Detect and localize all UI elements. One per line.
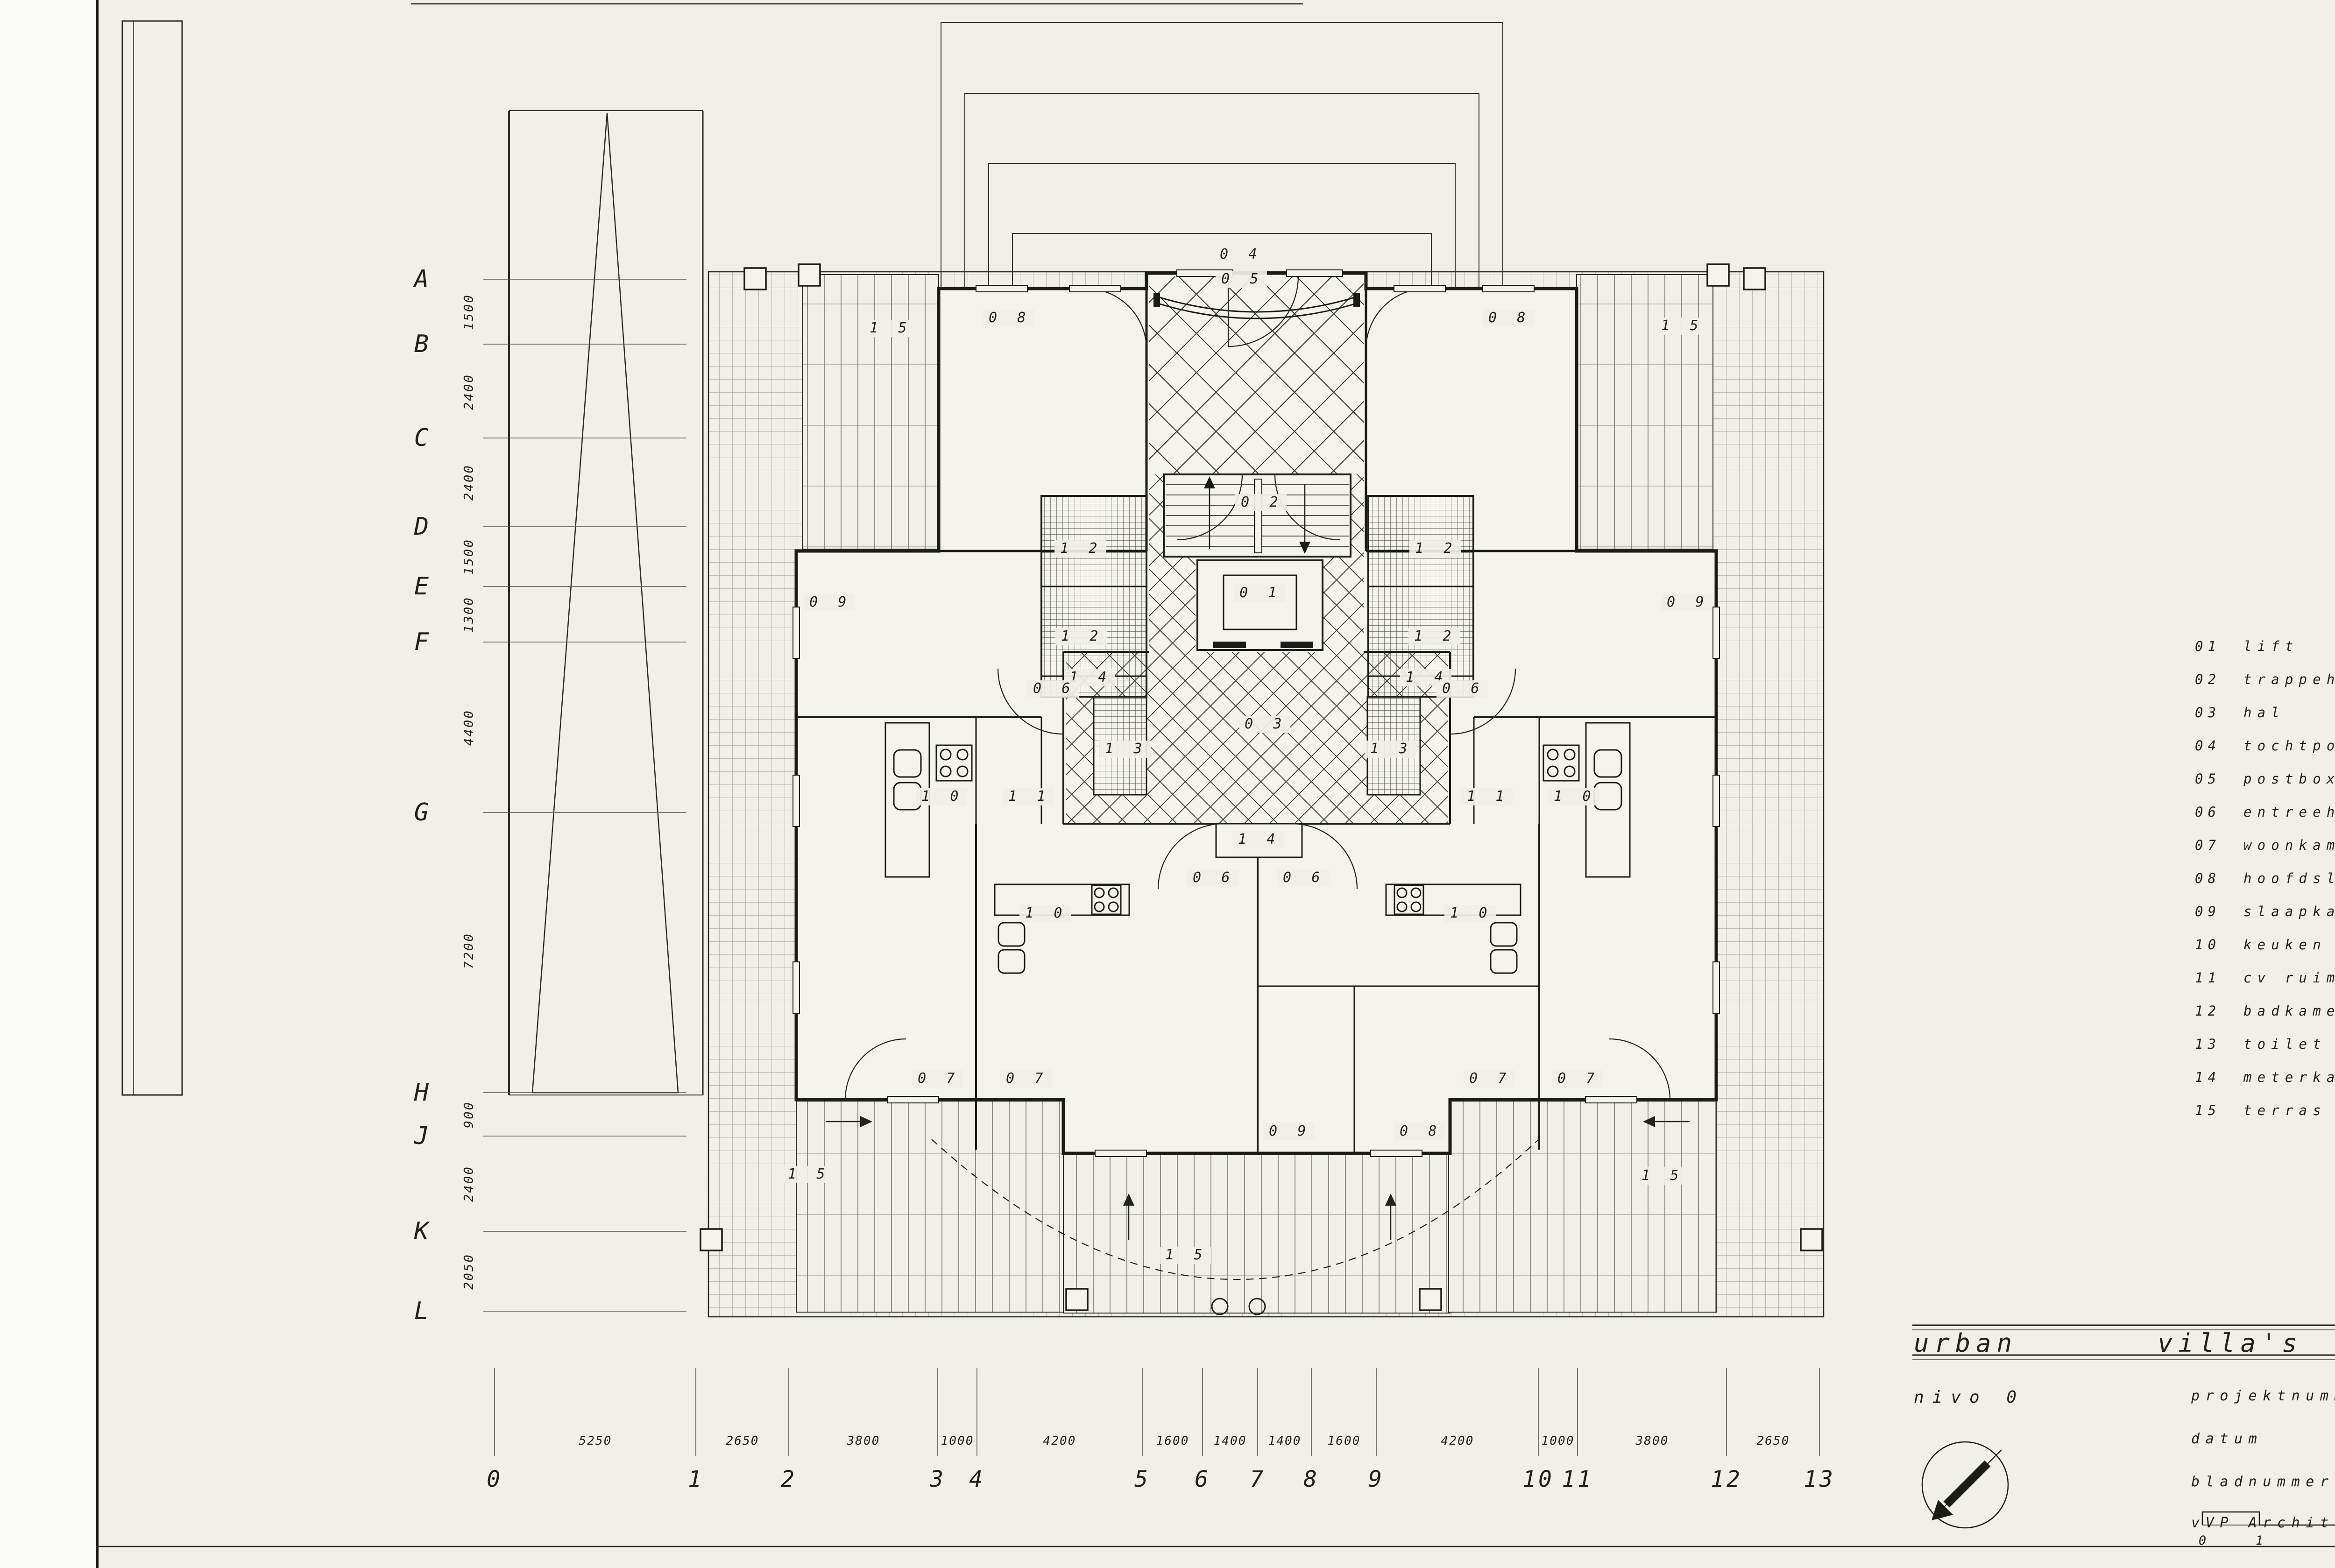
legend-item: 07woonkamer <box>2195 837 2335 853</box>
room-label: 0 6 <box>1187 869 1238 887</box>
legend-item-label: meterkast <box>2243 1069 2335 1085</box>
legend-item-number: 04 <box>2195 738 2243 754</box>
grid-row-dimension: 2050 <box>462 1253 476 1290</box>
grid-column-number: 4 <box>969 1466 985 1492</box>
grid-column-number: 3 <box>930 1466 946 1492</box>
legend-item-label: lift <box>2243 638 2299 654</box>
grid-column-number: 5 <box>1134 1466 1150 1492</box>
legend-item: 06entreehal <box>2195 804 2335 820</box>
grid-column-dimension: 4200 <box>1441 1434 1474 1448</box>
grid-column-dimension: 1000 <box>1542 1434 1575 1448</box>
title-word-2: villa's <box>2158 1328 2303 1358</box>
room-label: 1 2 <box>1409 540 1461 558</box>
legend-item: 11cv ruimte/berging <box>2195 970 2335 986</box>
legend-item: 13toilet <box>2195 1036 2327 1052</box>
room-label: 0 9 <box>804 594 855 611</box>
grid-column-dimension: 2650 <box>1757 1434 1790 1448</box>
legend-item: 15terras <box>2195 1102 2327 1118</box>
grid-column-number: 2 <box>781 1466 797 1492</box>
level-label: nivo 0 <box>1914 1388 2025 1407</box>
room-label: 0 8 <box>1394 1123 1445 1140</box>
grid-column-number: 8 <box>1303 1466 1319 1492</box>
staircase <box>1164 474 1351 557</box>
legend-item: 14meterkast <box>2195 1069 2335 1085</box>
room-label: 0 6 <box>1027 680 1079 698</box>
room-label: 1 3 <box>1365 741 1416 758</box>
room-label: 0 3 <box>1239 716 1290 733</box>
room-label: 0 9 <box>1263 1123 1315 1140</box>
legend-item-label: trappehuis <box>2243 671 2335 687</box>
legend-item-number: 12 <box>2195 1003 2243 1019</box>
grid-column-dimension: 3800 <box>1636 1434 1669 1448</box>
legend-item-number: 13 <box>2195 1036 2243 1052</box>
grid-column-number: 0 <box>487 1466 502 1492</box>
grid-column-dimension: 1000 <box>941 1434 974 1448</box>
room-label: 0 4 <box>1214 246 1266 263</box>
titleblock-field-label: projektnummer <box>2191 1388 2335 1404</box>
legend-item-label: hoofdslaapkamer <box>2243 870 2335 886</box>
grid-column-number: 13 <box>1804 1466 1835 1492</box>
legend-item-label: hal <box>2243 705 2285 720</box>
grid-column-number: 11 <box>1562 1466 1593 1492</box>
grid-row-letter: B <box>414 330 432 358</box>
grid-row-dimension: 4400 <box>462 709 476 746</box>
legend-item-number: 03 <box>2195 705 2243 720</box>
room-label: 1 0 <box>1444 905 1496 922</box>
room-label: 1 1 <box>1461 788 1513 805</box>
room-label: 1 3 <box>1099 741 1151 758</box>
legend-item: 01lift <box>2195 638 2299 654</box>
grid-row-dimension: 1300 <box>462 596 476 633</box>
legend-item-label: woonkamer <box>2243 837 2335 853</box>
grid-row-letter: G <box>414 798 432 826</box>
titleblock-field-label: datum <box>2191 1431 2263 1447</box>
grid-row-letter: C <box>414 424 432 452</box>
legend-item: 09slaapkamer <box>2195 904 2335 919</box>
grid-column-dimension: 5250 <box>579 1434 612 1448</box>
title-bar: urban villa's maarssen <box>1914 1331 2335 1355</box>
room-label: 1 5 <box>864 320 915 337</box>
legend-item-label: terras <box>2243 1102 2327 1118</box>
grid-row-letter: L <box>414 1297 432 1325</box>
room-label: 0 7 <box>1464 1070 1515 1088</box>
drawing-sheet: urban villa's maarssen nivo 0 01lift02tr… <box>0 0 2335 1568</box>
grid-row-letter: H <box>414 1079 432 1107</box>
room-label: 1 5 <box>1656 318 1707 335</box>
room-label: 1 5 <box>1160 1247 1211 1264</box>
room-label: 0 9 <box>1661 594 1712 611</box>
room-label: 1 5 <box>782 1166 834 1183</box>
room-label: 0 7 <box>1000 1070 1052 1088</box>
grid-column-dimension: 1600 <box>1156 1434 1189 1448</box>
room-label: 0 7 <box>1552 1070 1603 1088</box>
scale-bar-number: 0 <box>2199 1533 2206 1548</box>
grid-row-dimension: 1500 <box>462 294 476 330</box>
grid-column-dimension: 2650 <box>726 1434 759 1448</box>
room-label: 0 6 <box>1436 680 1488 698</box>
legend-item: 05postboxen <box>2195 771 2335 787</box>
legend-item-number: 01 <box>2195 638 2243 654</box>
grid-column-dimension: 1600 <box>1328 1434 1361 1448</box>
legend-item: 08hoofdslaapkamer <box>2195 870 2335 886</box>
grid-column-dimension: 3800 <box>847 1434 880 1448</box>
grid-column-number: 9 <box>1368 1466 1384 1492</box>
legend-item: 10keuken <box>2195 937 2327 953</box>
north-arrow-icon <box>1922 1442 2008 1528</box>
room-label: 0 8 <box>1483 310 1534 327</box>
scale-bar-number: 1 <box>2256 1533 2263 1548</box>
room-label: 1 5 <box>1636 1167 1687 1185</box>
grid-row-dimension: 2400 <box>462 374 476 410</box>
grid-row-letter: E <box>414 572 432 600</box>
grid-column-dimension: 4200 <box>1043 1434 1076 1448</box>
legend-item: 12badkamer <box>2195 1003 2335 1019</box>
legend-item-number: 09 <box>2195 904 2243 919</box>
grid-row-letter: F <box>414 628 432 656</box>
grid-column-number: 12 <box>1711 1466 1742 1492</box>
grid-row-letter: J <box>414 1122 432 1150</box>
grid-row-dimension: 2400 <box>462 1165 476 1202</box>
lift-shaft <box>1197 560 1323 650</box>
grid-column-number: 7 <box>1250 1466 1266 1492</box>
legend-item: 02trappehuis <box>2195 671 2335 687</box>
room-label: 1 1 <box>1003 788 1054 805</box>
legend-item-number: 06 <box>2195 804 2243 820</box>
titleblock-field-label: bladnummer <box>2191 1474 2335 1490</box>
grid-column-dimension: 1400 <box>1268 1434 1302 1448</box>
legend-item-label: slaapkamer <box>2243 904 2335 919</box>
site-road-strip <box>122 21 182 1095</box>
room-label: 1 0 <box>1548 788 1599 805</box>
room-label: 1 2 <box>1054 540 1106 558</box>
legend-item-number: 02 <box>2195 671 2243 687</box>
grid-row-dimension: 1500 <box>462 538 476 575</box>
legend-item: 03hal <box>2195 705 2285 720</box>
titleblock-field-label: vVP Architekten / MBB <box>2191 1515 2335 1531</box>
grid-column-dimension: 1400 <box>1214 1434 1247 1448</box>
legend-item-number: 08 <box>2195 870 2243 886</box>
room-label: 1 0 <box>916 788 967 805</box>
legend-item-number: 10 <box>2195 937 2243 953</box>
room-label: 1 2 <box>1055 628 1107 645</box>
legend-item-number: 11 <box>2195 970 2243 986</box>
room-label: 0 7 <box>912 1070 963 1088</box>
legend-item-number: 07 <box>2195 837 2243 853</box>
legend-item: 04tochtportaal <box>2195 738 2335 754</box>
legend-item-label: cv ruimte/berging <box>2243 970 2335 986</box>
legend-item-number: 14 <box>2195 1069 2243 1085</box>
room-label: 1 4 <box>1232 831 1284 848</box>
legend-item-label: toilet <box>2243 1036 2327 1052</box>
grid-column-number: 10 <box>1522 1466 1554 1492</box>
legend-item-number: 05 <box>2195 771 2243 787</box>
legend-item-label: badkamer <box>2243 1003 2335 1019</box>
grid-row-letter: A <box>414 265 432 293</box>
grid-row-dimension: 7200 <box>462 932 476 969</box>
legend-item-label: tochtportaal <box>2243 738 2335 754</box>
legend-item-label: entreehal <box>2243 804 2335 820</box>
room-label: 0 2 <box>1235 494 1287 511</box>
site-ramp-triangle <box>509 111 703 1095</box>
grid-row-dimension: 2400 <box>462 464 476 501</box>
legend-item-label: keuken <box>2243 937 2327 953</box>
room-label: 1 2 <box>1408 628 1460 645</box>
title-word-1: urban <box>1914 1328 2017 1358</box>
legend-item-label: postboxen <box>2243 771 2335 787</box>
room-label: 0 8 <box>983 310 1034 327</box>
legend-item-number: 15 <box>2195 1102 2243 1118</box>
grid-column-number: 1 <box>688 1466 704 1492</box>
grid-row-dimension: 900 <box>462 1101 476 1129</box>
room-label: 0 1 <box>1234 585 1285 602</box>
grid-row-letter: D <box>414 513 432 541</box>
grid-column-number: 6 <box>1195 1466 1210 1492</box>
room-label: 0 5 <box>1216 271 1267 288</box>
room-label: 1 0 <box>1019 905 1071 922</box>
grid-row-letter: K <box>414 1217 432 1245</box>
room-label: 0 6 <box>1277 869 1329 887</box>
